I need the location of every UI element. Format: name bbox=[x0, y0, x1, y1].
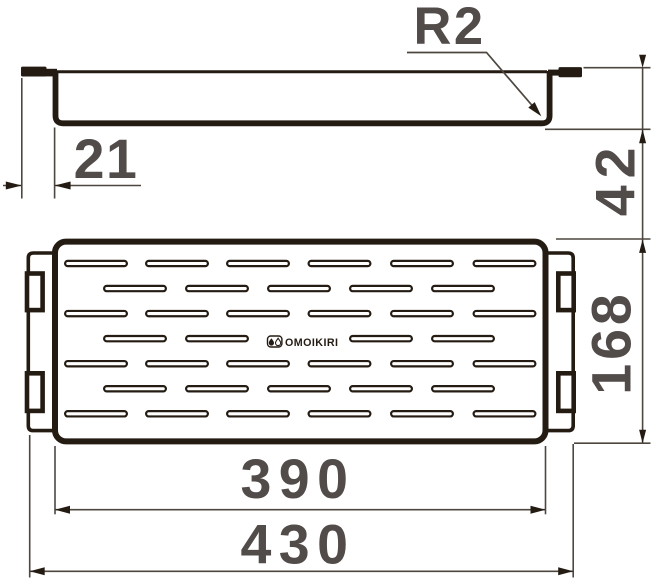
svg-text:R2: R2 bbox=[413, 0, 485, 56]
svg-text:168: 168 bbox=[581, 290, 643, 395]
svg-text:42: 42 bbox=[585, 141, 647, 217]
svg-text:OMOIKIRI: OMOIKIRI bbox=[285, 337, 338, 349]
svg-text:390: 390 bbox=[240, 448, 355, 510]
svg-text:21: 21 bbox=[74, 128, 139, 190]
svg-text:430: 430 bbox=[240, 513, 355, 575]
